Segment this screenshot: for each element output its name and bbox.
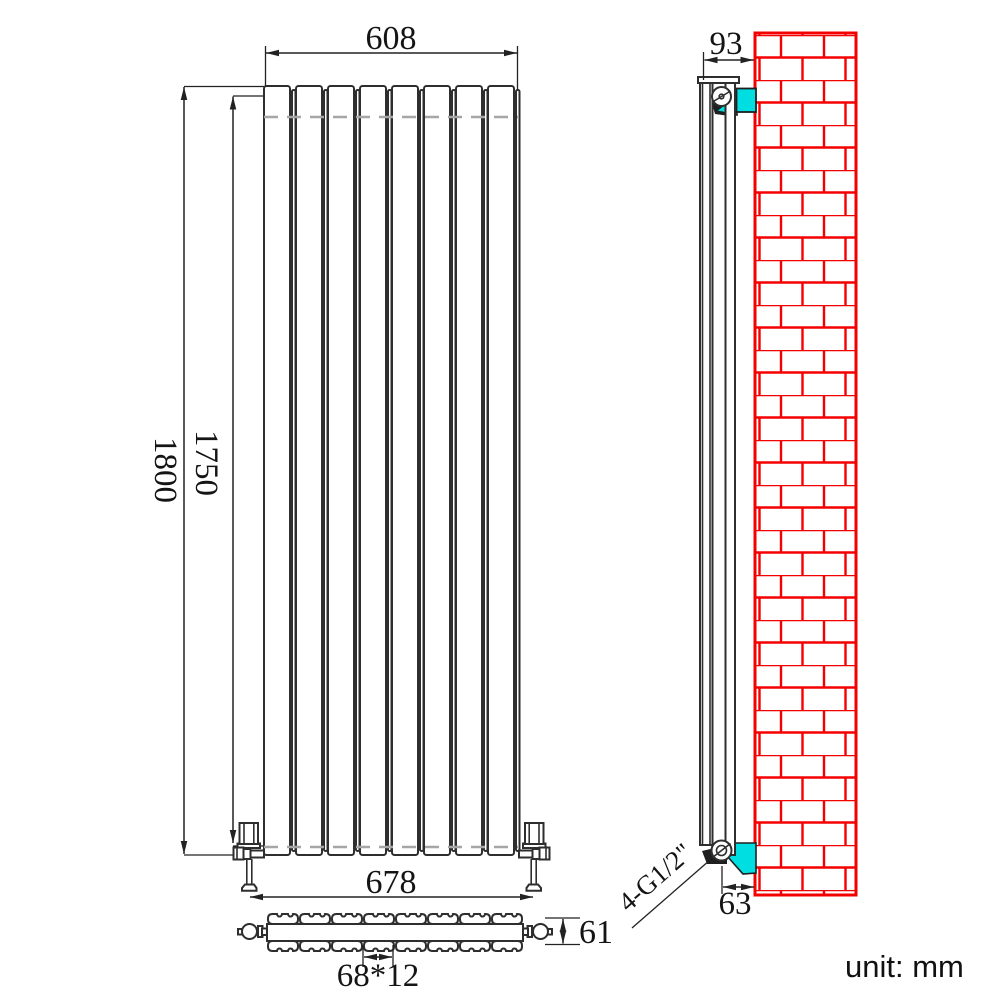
brick-wall	[755, 33, 856, 895]
bottom-mounting-screw	[712, 841, 732, 861]
radiator-technical-drawing: 1800 1750 608 678	[0, 0, 1001, 1001]
dim-label-61: 61	[579, 914, 613, 951]
right-valve-section	[523, 924, 552, 939]
radiator-side-profile	[698, 77, 739, 861]
dim-label-93: 93	[710, 26, 743, 62]
drawing-canvas: 1800 1750 608 678	[0, 0, 1001, 1001]
dim-label-608: 608	[366, 20, 417, 57]
plan-view: 61 68*12	[238, 914, 613, 994]
front-view: 1800 1750 608 678	[147, 20, 550, 901]
left-valve-section	[238, 924, 267, 939]
panel	[360, 86, 392, 855]
dim-label-1800: 1800	[147, 437, 183, 503]
panel	[328, 86, 360, 855]
panel	[488, 86, 520, 855]
connection-label: 4-G1/2"	[612, 837, 698, 917]
panel-sections-top	[268, 914, 522, 924]
panel	[264, 86, 296, 855]
panel	[392, 86, 424, 855]
dim-label-68x12: 68*12	[337, 958, 420, 994]
riser-pipe	[726, 83, 736, 855]
header-bar	[267, 924, 523, 941]
unit-label: unit: mm	[845, 949, 964, 984]
panel	[456, 86, 488, 855]
panel	[424, 86, 456, 855]
dim-label-678: 678	[366, 864, 417, 901]
left-valve	[234, 823, 265, 891]
panel-sections-bottom	[268, 941, 522, 951]
top-mounting-screw	[712, 87, 731, 106]
panel	[296, 86, 328, 855]
dim-label-63: 63	[719, 886, 752, 922]
dim-label-1750: 1750	[188, 430, 224, 496]
radiator-panels	[264, 86, 520, 855]
side-view: 93 63 4-G1/2"	[612, 26, 856, 928]
right-valve	[519, 823, 550, 891]
